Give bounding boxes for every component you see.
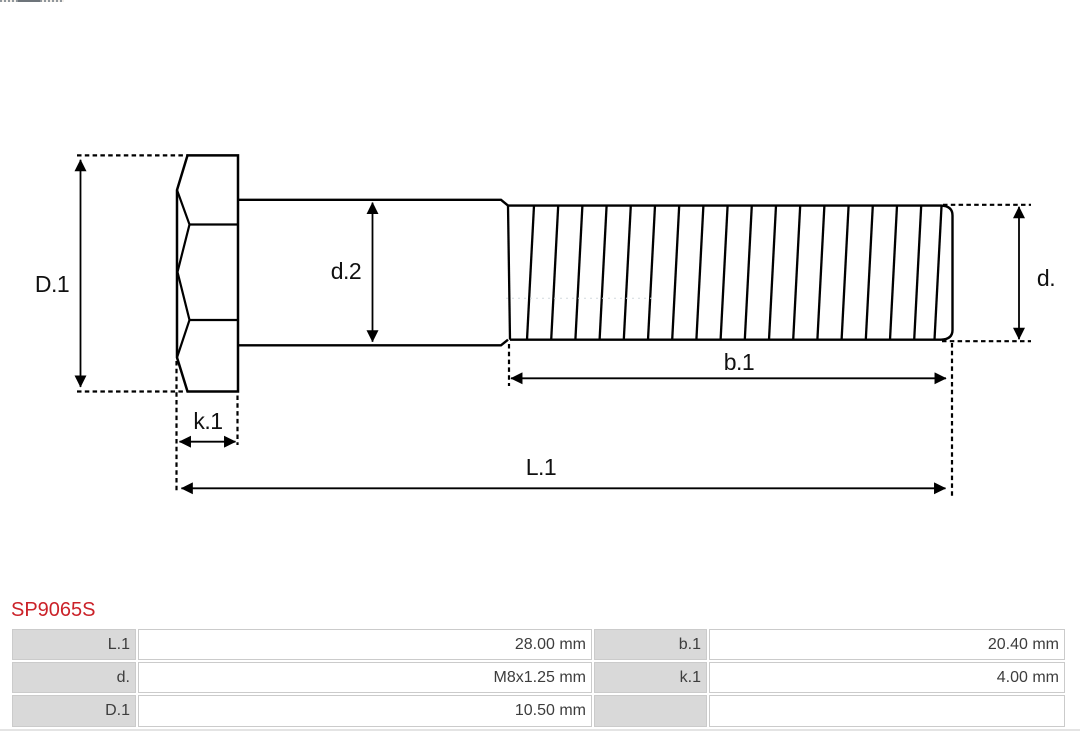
svg-text:d.2: d.2 — [331, 258, 361, 284]
svg-text:b.1: b.1 — [724, 349, 754, 375]
svg-text:d.: d. — [1037, 265, 1055, 291]
svg-text:D.1: D.1 — [35, 271, 69, 297]
svg-text:k.1: k.1 — [193, 408, 222, 434]
svg-text:L.1: L.1 — [526, 454, 556, 480]
